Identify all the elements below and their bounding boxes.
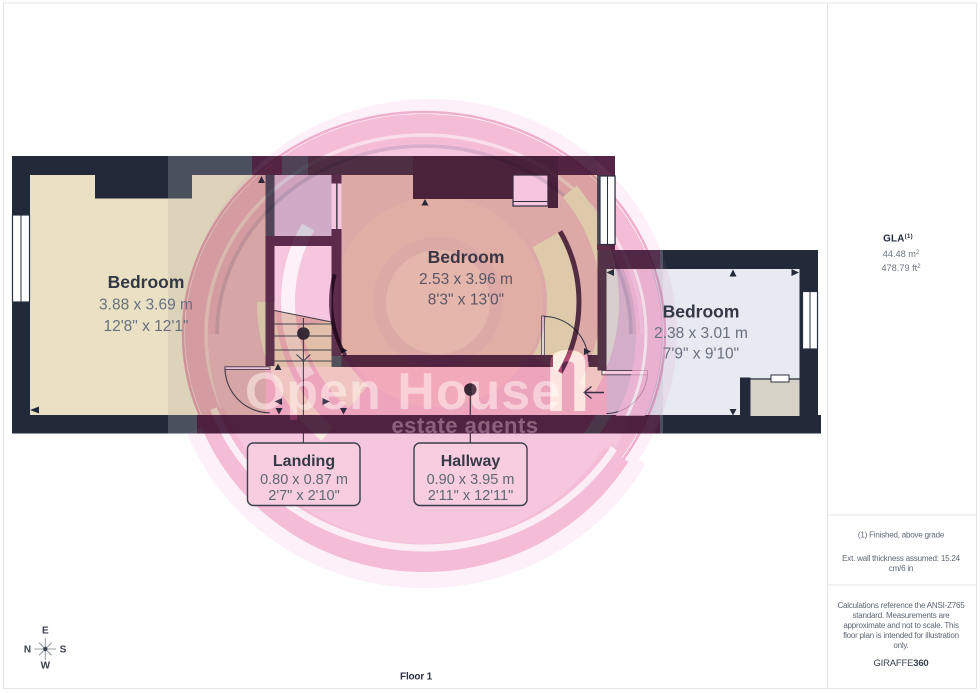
svg-text:Bedroom: Bedroom bbox=[428, 247, 505, 267]
svg-text:Bedroom: Bedroom bbox=[108, 272, 185, 292]
svg-text:2'7" x 2'10": 2'7" x 2'10" bbox=[268, 488, 339, 504]
svg-text:only.: only. bbox=[893, 641, 908, 650]
svg-text:N: N bbox=[24, 645, 31, 656]
svg-text:2.38 x 3.01 m: 2.38 x 3.01 m bbox=[654, 325, 748, 342]
svg-text:W: W bbox=[41, 661, 51, 672]
svg-text:E: E bbox=[42, 626, 49, 637]
svg-text:floor plan is intended for ill: floor plan is intended for illustration bbox=[843, 631, 959, 640]
svg-text:Bedroom: Bedroom bbox=[663, 302, 740, 322]
svg-text:approximate and not to scale.: approximate and not to scale. This bbox=[843, 621, 959, 630]
svg-text:cm/6 in: cm/6 in bbox=[889, 564, 913, 573]
svg-text:12'8" x 12'1": 12'8" x 12'1" bbox=[103, 318, 188, 335]
svg-text:478.79 ft2: 478.79 ft2 bbox=[881, 263, 921, 273]
svg-text:standard. Measurements are: standard. Measurements are bbox=[852, 611, 950, 620]
svg-text:7'9" x 9'10": 7'9" x 9'10" bbox=[663, 346, 739, 363]
svg-text:estate agents: estate agents bbox=[391, 413, 538, 438]
svg-text:Floor 1: Floor 1 bbox=[400, 672, 433, 683]
svg-text:S: S bbox=[60, 645, 67, 656]
svg-text:GIRAFFE360: GIRAFFE360 bbox=[873, 658, 928, 669]
svg-text:Calculations reference the ANS: Calculations reference the ANSI-Z765 bbox=[837, 601, 965, 610]
svg-text:44.48 m2: 44.48 m2 bbox=[883, 249, 920, 259]
svg-text:3.88 x 3.69 m: 3.88 x 3.69 m bbox=[99, 297, 193, 314]
svg-text:0.80 x 0.87 m: 0.80 x 0.87 m bbox=[260, 472, 348, 488]
svg-text:8'3" x 13'0": 8'3" x 13'0" bbox=[428, 292, 504, 309]
svg-text:(1) Finished, above grade: (1) Finished, above grade bbox=[858, 531, 945, 540]
svg-text:2'11" x 12'11": 2'11" x 12'11" bbox=[428, 488, 513, 504]
svg-text:0.90 x 3.95 m: 0.90 x 3.95 m bbox=[427, 472, 515, 488]
svg-text:Landing: Landing bbox=[273, 453, 335, 470]
svg-text:Hallway: Hallway bbox=[441, 453, 501, 470]
svg-text:Ext. wall thickness assumed: 1: Ext. wall thickness assumed: 15.24 bbox=[842, 554, 960, 563]
svg-text:2.53 x 3.96 m: 2.53 x 3.96 m bbox=[419, 271, 513, 288]
